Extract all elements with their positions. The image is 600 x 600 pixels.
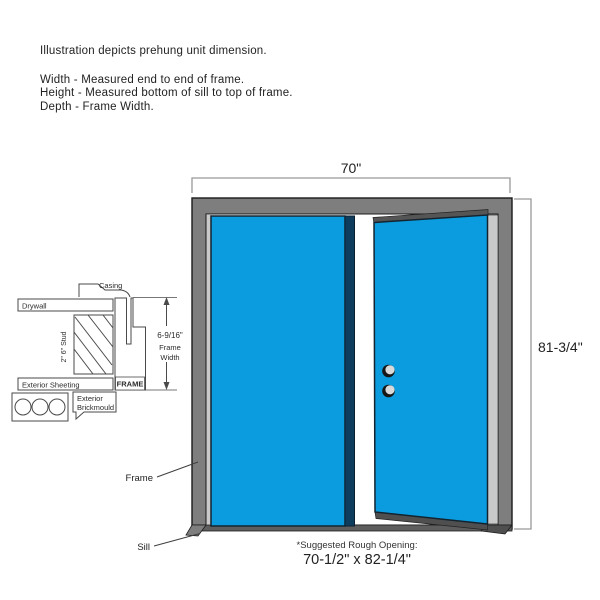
width-dimension-label: 70" [341, 160, 362, 176]
frame-width-arrow-down [164, 382, 170, 390]
door-dimension-diagram: 70" 81-3/4" Frame Sill *Suggested Rough … [0, 0, 600, 600]
frame-jamb-profile [115, 298, 146, 390]
exterior-sheeting-label: Exterior Sheeting [22, 381, 80, 390]
height-dimension-label: 81-3/4" [538, 339, 583, 355]
brickmould-section [12, 393, 68, 421]
width-dimension-bracket [192, 178, 510, 193]
sill-callout-leader [154, 534, 200, 547]
exterior-brickmould-label-line1: Exterior [77, 394, 103, 403]
frame-callout-label: Frame [126, 473, 153, 484]
frame-width-value: 6-9/16" [157, 331, 183, 340]
stud-label: 2" 6" Stud [61, 331, 68, 362]
frame-width-word1: Frame [159, 343, 181, 352]
deadbolt [385, 365, 394, 374]
rough-opening-value: 70-1/2" x 82-1/4" [303, 552, 411, 568]
door-knob [385, 385, 394, 394]
rough-opening-label: *Suggested Rough Opening: [297, 540, 418, 551]
height-dimension-bracket [514, 199, 531, 529]
frame-width-word2: Width [160, 353, 179, 362]
left-door-panel [211, 216, 345, 526]
left-door-astragal [345, 216, 355, 526]
sill-callout-label: Sill [137, 542, 150, 553]
door-unit [186, 198, 512, 536]
frame-section-label: FRAME [117, 380, 144, 389]
casing-label: Casing [99, 281, 122, 290]
drywall-label: Drywall [22, 302, 47, 311]
stud-hatch [74, 315, 113, 374]
frame-width-arrow-up [164, 297, 170, 305]
exterior-brickmould-label-line2: Brickmould [77, 403, 114, 412]
